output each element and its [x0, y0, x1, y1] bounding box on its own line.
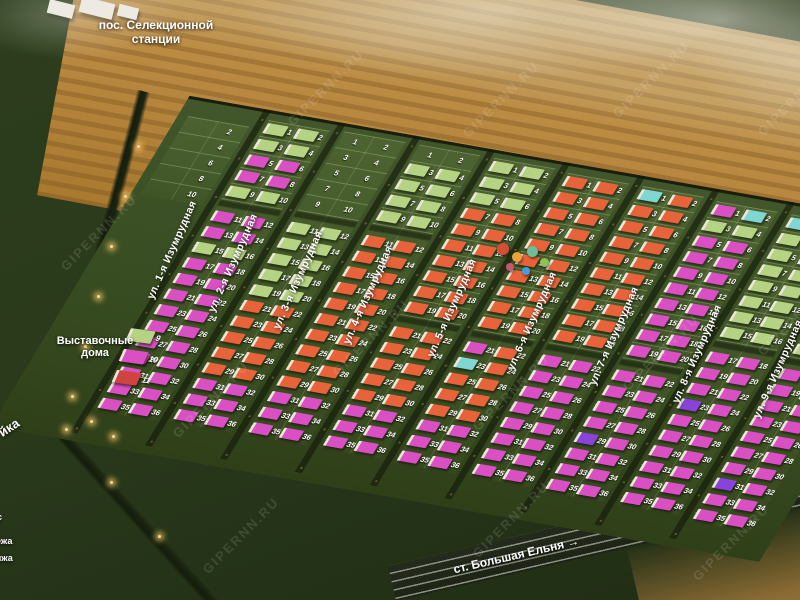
plot-number: 4 [372, 159, 380, 167]
playground-equipment [497, 243, 509, 255]
plot-number: 8 [197, 175, 205, 183]
house-marker[interactable] [775, 233, 800, 247]
plot-number: 9 [314, 201, 322, 209]
plot-number: 2 [382, 143, 390, 151]
street-lamp [65, 428, 68, 431]
playground-equipment [506, 263, 514, 271]
plot-number: 4 [216, 144, 224, 152]
plot-number: 8 [354, 190, 362, 198]
plot-number: 7 [323, 185, 331, 193]
plot-number: 10 [342, 206, 354, 214]
edge-fragment: с [0, 512, 2, 522]
plot-number: 2 [225, 128, 233, 136]
house-marker[interactable] [779, 420, 800, 434]
playground-equipment [540, 258, 549, 267]
plot-number: 2 [457, 157, 465, 165]
settlement-label: пос. Селекционной станции [86, 18, 226, 46]
playground-equipment [522, 267, 530, 275]
edge-fragment: яжа [0, 553, 13, 563]
street-lamp [110, 245, 113, 248]
street-lamp [110, 481, 113, 484]
house-marker[interactable] [778, 285, 800, 299]
plot-number: 1 [351, 138, 359, 146]
playground-equipment [512, 252, 522, 262]
house-marker[interactable] [785, 217, 800, 231]
edge-fragment: ежа [0, 536, 12, 546]
street-lamp [90, 420, 93, 423]
exhibition-label: Выставочные дома [30, 335, 160, 359]
street-lamp [158, 535, 161, 538]
playground-equipment [527, 246, 538, 257]
street-lamp [137, 145, 140, 148]
plot-number: 5 [332, 169, 340, 177]
street-lamp [71, 395, 74, 398]
watermark: GIPERNN.RU [200, 494, 282, 576]
street-lamp [97, 295, 100, 298]
plot-number: 3 [342, 154, 350, 162]
street-lamp [112, 435, 115, 438]
masterplan-scene: 2468101234567891011121314151617181920212… [0, 0, 800, 600]
plot-number: 6 [363, 175, 371, 183]
plot-number: 1 [426, 151, 434, 159]
plot-number: 6 [207, 159, 215, 167]
